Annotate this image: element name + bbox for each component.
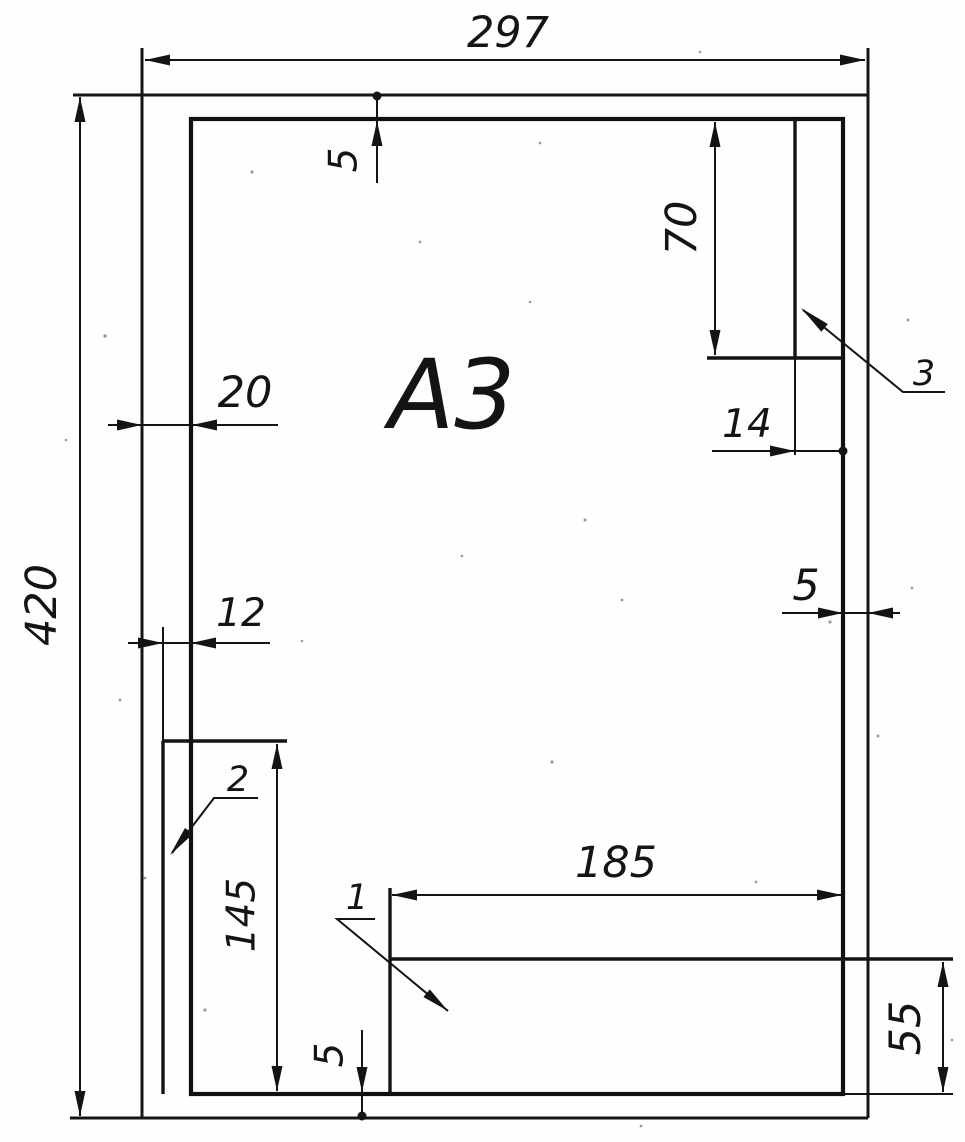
dim-title-block-width: 185 xyxy=(392,838,842,895)
dim-arrow-20-b xyxy=(192,420,217,431)
scanned-drawing-page: 297 420 5 70 14 5 20 xyxy=(0,0,965,1142)
dim-arrow-12-b xyxy=(191,638,216,649)
callout-1-label: 1 xyxy=(346,878,368,918)
dim-sheet-width: 297 xyxy=(145,8,865,60)
dim-dot-top xyxy=(373,92,382,101)
dim-sheet-height: 420 xyxy=(17,97,80,1116)
dim-5-bottom-label: 5 xyxy=(308,1043,353,1068)
dim-20-label: 20 xyxy=(218,368,273,418)
dim-arrow-5-bottom xyxy=(357,1067,368,1092)
sheet-format-label: А3 xyxy=(383,339,516,451)
dim-55-label: 55 xyxy=(881,1001,931,1056)
dim-12-label: 12 xyxy=(216,591,266,636)
dim-arrow-5-top xyxy=(372,121,383,146)
dim-14-label: 14 xyxy=(722,402,772,447)
dim-dot-14 xyxy=(839,447,848,456)
gost-sheet-layout-diagram: 297 420 5 70 14 5 20 xyxy=(0,0,965,1142)
callout-side-strip: 2 xyxy=(170,760,258,855)
dim-margin-bottom: 5 xyxy=(308,1030,368,1121)
scan-noise xyxy=(65,51,954,1128)
drawing-frame-border xyxy=(191,119,843,1094)
dim-arrow-5-right-b xyxy=(868,608,893,619)
dim-70-label: 70 xyxy=(657,201,707,256)
dim-strip-width: 12 xyxy=(128,591,270,649)
callout-3-label: 3 xyxy=(913,354,935,394)
dim-column-width: 14 xyxy=(712,402,848,457)
dim-arrow-5-right-a xyxy=(818,608,843,619)
dim-297-label: 297 xyxy=(467,8,549,58)
callout-title-block: 1 xyxy=(337,878,448,1011)
dim-185-label: 185 xyxy=(575,838,657,888)
callout-2-label: 2 xyxy=(227,760,249,800)
leader-arrow-3 xyxy=(801,308,828,332)
dim-arrow-12-a xyxy=(138,638,163,649)
dim-420-label: 420 xyxy=(17,564,67,646)
dim-margin-top: 5 xyxy=(322,92,383,184)
dim-column-length: 70 xyxy=(657,122,715,355)
dim-dot-bottom xyxy=(358,1112,367,1121)
dim-5-right-label: 5 xyxy=(792,561,819,611)
dim-5-top-label: 5 xyxy=(322,148,367,173)
dim-arrow-14 xyxy=(770,446,795,457)
leader-arrow-1 xyxy=(423,989,448,1011)
dim-145-label: 145 xyxy=(220,878,265,952)
dim-arrow-20-a xyxy=(117,420,142,431)
dim-title-block-height: 55 xyxy=(881,962,943,1092)
leader-line-2 xyxy=(172,798,258,853)
callout-corner-column: 3 xyxy=(801,308,945,394)
